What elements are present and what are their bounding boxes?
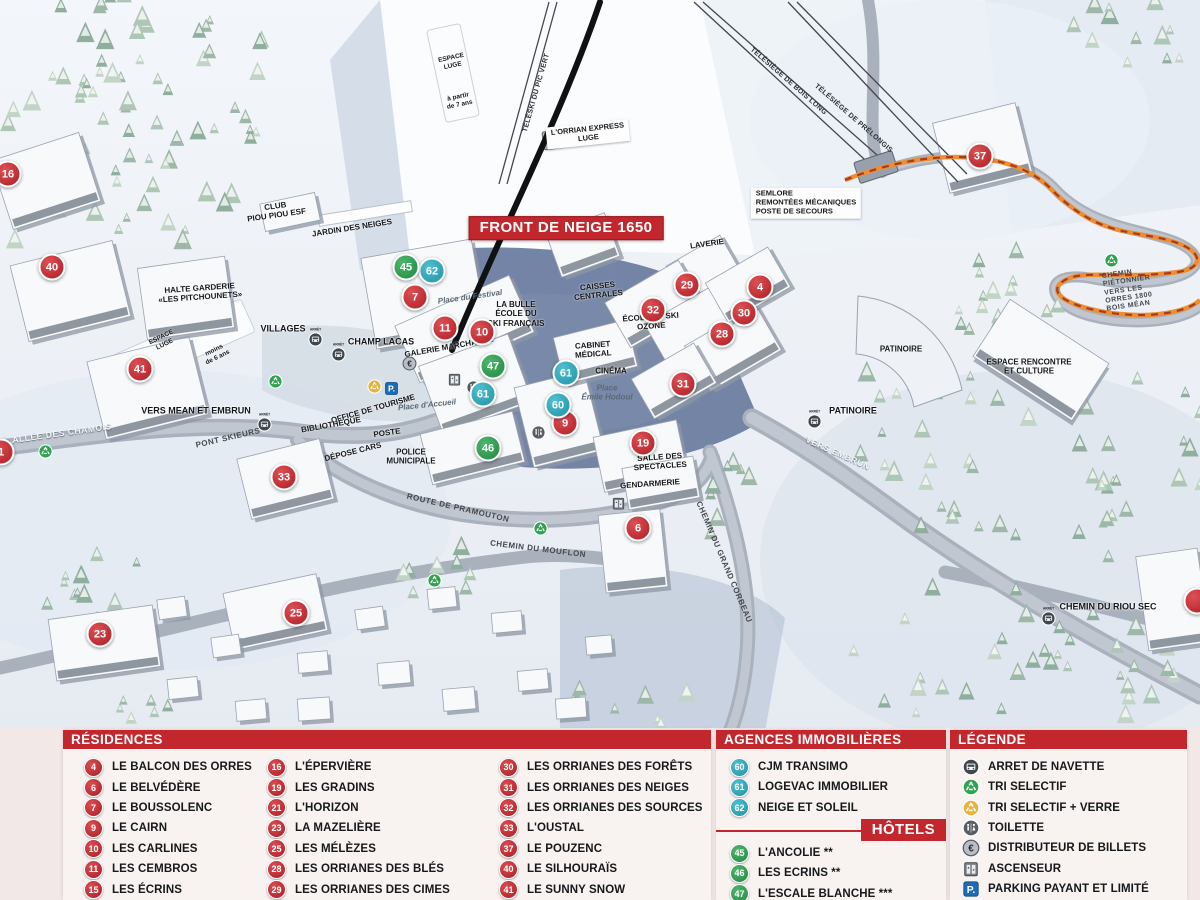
list-item: 29LES ORRIANES DES CIMES	[246, 879, 478, 899]
hotels-header: HÔTELS	[861, 819, 946, 841]
number-badge: 25	[267, 839, 286, 858]
item-label: NEIGE ET SOLEIL	[758, 802, 858, 814]
list-item: 9LE CAIRN	[63, 818, 246, 838]
number-badge: 41	[499, 880, 518, 899]
item-label: L'ESCALE BLANCHE ***	[758, 888, 892, 900]
list-item: 6LE BELVÉDÈRE	[63, 777, 246, 797]
number-badge: 45	[730, 844, 749, 863]
item-label: LES ORRIANES DES FORÊTS	[527, 761, 692, 773]
list-item: 23LA MAZELIÈRE	[246, 818, 478, 838]
residences-column-2: 16L'ÉPERVIÈRE19LES GRADINS21L'HORIZON23L…	[246, 757, 478, 900]
item-label: LES CEMBROS	[112, 863, 197, 875]
item-label: LES ORRIANES DES BLÉS	[295, 863, 444, 875]
number-badge: 4	[84, 758, 103, 777]
map-marker-10: 10	[469, 319, 496, 346]
number-badge: 60	[730, 758, 749, 777]
list-item: 61LOGEVAC IMMOBILIER	[716, 777, 946, 797]
map-marker-31: 31	[670, 371, 697, 398]
recycle-yellow-icon	[962, 799, 980, 817]
parking-icon: P.	[962, 880, 980, 898]
map-marker-23: 23	[87, 621, 114, 648]
map-marker-37: 37	[967, 143, 994, 170]
item-label: LE CAIRN	[112, 822, 167, 834]
number-badge: 7	[84, 798, 103, 817]
list-item: 21L'HORIZON	[246, 798, 478, 818]
elevator-icon	[962, 860, 980, 878]
map-marker-29: 29	[674, 272, 701, 299]
map-area: ARRÊTARRÊTARRÊTARRÊTARRÊTP.€ CLUB PIOU P…	[0, 0, 1200, 732]
list-item: 30LES ORRIANES DES FORÊTS	[478, 757, 711, 777]
list-item: 16L'ÉPERVIÈRE	[246, 757, 478, 777]
agences-header: AGENCES IMMOBILIÈRES	[716, 730, 946, 749]
number-badge: 29	[267, 880, 286, 899]
legend-item: TRI SELECTIF	[950, 777, 1187, 797]
number-badge: 62	[730, 798, 749, 817]
item-label: LE BELVÉDÈRE	[112, 782, 201, 794]
item-label: L'ANCOLIE **	[758, 847, 833, 859]
list-item: 10LES CARLINES	[63, 839, 246, 859]
item-label: LE SILHOURAÏS	[527, 863, 617, 875]
map-marker-45: 45	[393, 254, 420, 281]
agences-list: 60CJM TRANSIMO61LOGEVAC IMMOBILIER62NEIG…	[716, 749, 946, 818]
map-marker-11: 11	[432, 315, 459, 342]
map-marker-61: 61	[470, 381, 497, 408]
item-label: LES CARLINES	[112, 843, 198, 855]
list-item: 7LE BOUSSOLENC	[63, 798, 246, 818]
list-item: 32LES ORRIANES DES SOURCES	[478, 798, 711, 818]
residences-column-3: 30LES ORRIANES DES FORÊTS31LES ORRIANES …	[478, 757, 711, 900]
list-item: 62NEIGE ET SOLEIL	[716, 798, 946, 818]
legend-item: ARRET DE NAVETTE	[950, 757, 1187, 777]
legend-item: €DISTRIBUTEUR DE BILLETS	[950, 838, 1187, 858]
list-item: 28LES ORRIANES DES BLÉS	[246, 859, 478, 879]
map-marker-4: 4	[747, 274, 774, 301]
list-item: 41LE SUNNY SNOW	[478, 879, 711, 899]
list-item: 25LES MÉLÈZES	[246, 839, 478, 859]
number-badge: 47	[730, 884, 749, 900]
list-item: 60CJM TRANSIMO	[716, 757, 946, 777]
list-item: 33L'OUSTAL	[478, 818, 711, 838]
item-label: LES ORRIANES DES NEIGES	[527, 782, 689, 794]
item-label: LES ORRIANES DES SOURCES	[527, 802, 703, 814]
legend-item: TRI SELECTIF + VERRE	[950, 798, 1187, 818]
item-label: L'ÉPERVIÈRE	[295, 761, 371, 773]
map-marker-46: 46	[475, 435, 502, 462]
item-label: LES GRADINS	[295, 782, 375, 794]
list-item: 37LE POUZENC	[478, 839, 711, 859]
list-item: 46LES ECRINS **	[716, 863, 946, 883]
map-marker-19: 19	[630, 430, 657, 457]
map-marker-1: 1	[0, 439, 15, 466]
item-label: LE BOUSSOLENC	[112, 802, 212, 814]
item-label: LES MÉLÈZES	[295, 843, 376, 855]
agences-section: AGENCES IMMOBILIÈRES 60CJM TRANSIMO61LOG…	[716, 730, 946, 900]
recycle-green-icon	[962, 778, 980, 796]
legende-header: LÉGENDE	[950, 730, 1187, 749]
list-item: 11LES CEMBROS	[63, 859, 246, 879]
residences-columns: 4LE BALCON DES ORRES6LE BELVÉDÈRE7LE BOU…	[63, 749, 711, 900]
list-item: 15LES ÉCRINS	[63, 879, 246, 899]
number-badge: 30	[499, 758, 518, 777]
map-marker-30: 30	[731, 300, 758, 327]
map-marker-41: 41	[127, 356, 154, 383]
map-marker-partial	[1184, 588, 1200, 615]
map-marker-60: 60	[545, 392, 572, 419]
map-marker-28: 28	[709, 321, 736, 348]
number-badge: 9	[84, 819, 103, 838]
number-badge: 23	[267, 819, 286, 838]
item-label: LE BALCON DES ORRES	[112, 761, 252, 773]
map-marker-25: 25	[283, 600, 310, 627]
number-badge: 37	[499, 839, 518, 858]
number-badge: 28	[267, 860, 286, 879]
resort-map-page: ARRÊTARRÊTARRÊTARRÊTARRÊTP.€ CLUB PIOU P…	[0, 0, 1200, 900]
list-item: 4LE BALCON DES ORRES	[63, 757, 246, 777]
legend-label: ASCENSEUR	[988, 863, 1061, 875]
number-badge: 40	[499, 860, 518, 879]
number-badge: 10	[84, 839, 103, 858]
legend-label: ARRET DE NAVETTE	[988, 761, 1104, 773]
number-badge: 31	[499, 778, 518, 797]
hotels-divider: HÔTELS	[716, 821, 946, 841]
legend-label: TOILETTE	[988, 822, 1044, 834]
legend-item: P.PARKING PAYANT ET LIMITÉ	[950, 879, 1187, 899]
number-badge: 19	[267, 778, 286, 797]
map-marker-6: 6	[625, 515, 652, 542]
number-badge: 46	[730, 864, 749, 883]
svg-text:P.: P.	[967, 885, 976, 896]
legend-label: DISTRIBUTEUR DE BILLETS	[988, 842, 1146, 854]
number-badge: 16	[267, 758, 286, 777]
map-markers: 1640411332325711102932430283191963762616…	[0, 0, 1200, 732]
number-badge: 6	[84, 778, 103, 797]
map-marker-32: 32	[640, 297, 667, 324]
item-label: L'HORIZON	[295, 802, 359, 814]
legend-panel: RÉSIDENCES 4LE BALCON DES ORRES6LE BELVÉ…	[0, 728, 1200, 900]
item-label: LE SUNNY SNOW	[527, 884, 625, 896]
item-label: LA MAZELIÈRE	[295, 822, 381, 834]
legend-label: TRI SELECTIF + VERRE	[988, 802, 1120, 814]
item-label: LES ECRINS **	[758, 867, 840, 879]
hotels-list: 45L'ANCOLIE **46LES ECRINS **47L'ESCALE …	[716, 841, 946, 900]
legend-label: PARKING PAYANT ET LIMITÉ	[988, 883, 1149, 895]
map-marker-40: 40	[39, 254, 66, 281]
number-badge: 33	[499, 819, 518, 838]
list-item: 40LE SILHOURAÏS	[478, 859, 711, 879]
number-badge: 61	[730, 778, 749, 797]
item-label: CJM TRANSIMO	[758, 761, 848, 773]
number-badge: 15	[84, 880, 103, 899]
map-marker-62: 62	[419, 258, 446, 285]
list-item: 31LES ORRIANES DES NEIGES	[478, 777, 711, 797]
legend-item: ASCENSEUR	[950, 858, 1187, 878]
bus-icon	[962, 758, 980, 776]
legende-list: ARRET DE NAVETTETRI SELECTIFTRI SELECTIF…	[950, 749, 1187, 899]
svg-text:€: €	[968, 844, 974, 855]
atm-icon: €	[962, 839, 980, 857]
item-label: LOGEVAC IMMOBILIER	[758, 781, 888, 793]
map-marker-47: 47	[480, 353, 507, 380]
legend-label: TRI SELECTIF	[988, 781, 1067, 793]
list-item: 45L'ANCOLIE **	[716, 843, 946, 863]
toilet-icon	[962, 819, 980, 837]
list-item: 47L'ESCALE BLANCHE ***	[716, 883, 946, 900]
residences-column-1: 4LE BALCON DES ORRES6LE BELVÉDÈRE7LE BOU…	[63, 757, 246, 900]
map-marker-16: 16	[0, 161, 22, 188]
residences-header: RÉSIDENCES	[63, 730, 711, 749]
item-label: LE POUZENC	[527, 843, 602, 855]
number-badge: 11	[84, 860, 103, 879]
item-label: LES ORRIANES DES CIMES	[295, 884, 450, 896]
legende-section: LÉGENDE ARRET DE NAVETTETRI SELECTIFTRI …	[950, 730, 1187, 900]
legend-item: TOILETTE	[950, 818, 1187, 838]
number-badge: 21	[267, 798, 286, 817]
item-label: LES ÉCRINS	[112, 884, 182, 896]
residences-section: RÉSIDENCES 4LE BALCON DES ORRES6LE BELVÉ…	[63, 730, 711, 900]
map-marker-33: 33	[271, 464, 298, 491]
list-item: 19LES GRADINS	[246, 777, 478, 797]
map-marker-61: 61	[553, 360, 580, 387]
item-label: L'OUSTAL	[527, 822, 584, 834]
map-marker-7: 7	[402, 284, 429, 311]
number-badge: 32	[499, 798, 518, 817]
